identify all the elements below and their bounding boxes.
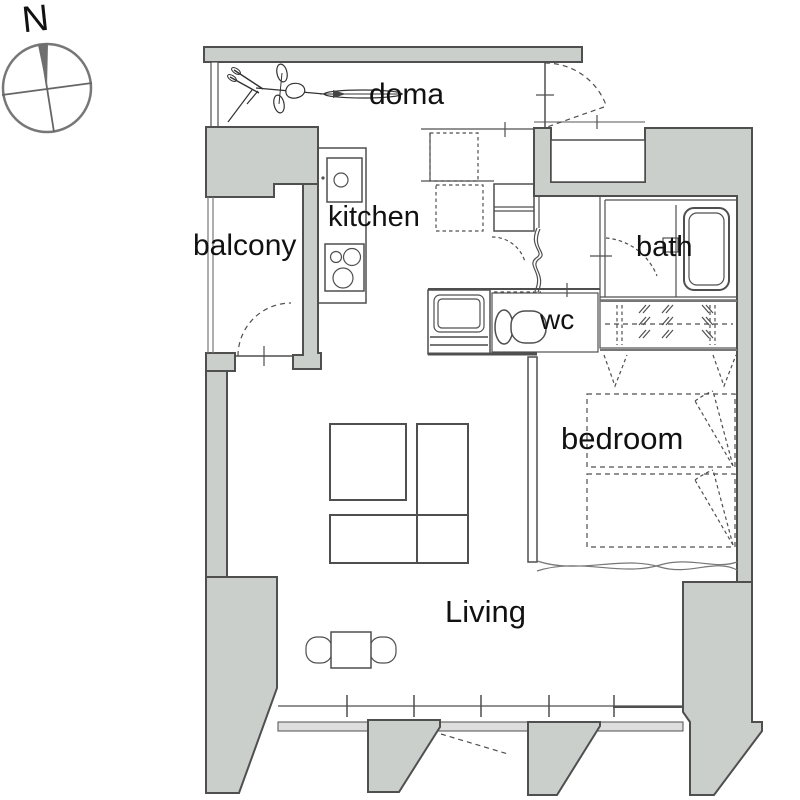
storage-box-dashed-1: [430, 133, 478, 181]
living-table-square: [330, 424, 406, 500]
chair-right: [370, 637, 396, 663]
pillar-bottom-mid-right: [528, 722, 600, 795]
pillar-bottom-mid-left: [368, 720, 440, 792]
accordion-curtain-icon-2: [536, 229, 542, 292]
wall-balcony-right: [293, 184, 321, 369]
room-label-kitchen: kitchen: [328, 203, 420, 232]
fold-fan-2: [695, 470, 733, 545]
burner-1: [331, 252, 342, 263]
shoe-cabinet-shelf: [494, 207, 534, 211]
faucet-dot: [321, 176, 324, 179]
window-dashed-diagonal: [441, 734, 508, 754]
closet: [600, 300, 737, 386]
room-label-doma: doma: [369, 80, 444, 110]
bedroom-items: [528, 357, 737, 571]
compass-icon: [2, 43, 92, 132]
burner-3: [333, 268, 353, 288]
bedroom-left-wall: [528, 357, 537, 562]
room-label-bedroom: bedroom: [561, 423, 683, 454]
compass-north-wedge: [38, 43, 48, 88]
closet-edges: [600, 301, 737, 350]
floorplan-canvas: N doma kitchen balcony bath wc bedroom L…: [0, 0, 800, 800]
wall-living-left: [206, 371, 227, 577]
kitchen-sink-icon: [327, 158, 362, 202]
genkan-step-lines: [421, 129, 534, 181]
folding-door-v-marks: [604, 355, 736, 386]
burner-2: [344, 249, 361, 266]
floorplan-drawing: [0, 0, 800, 800]
chair-left: [306, 637, 332, 663]
hall-door-swing: [492, 237, 525, 262]
living-furniture: [306, 424, 468, 668]
living-table-horizontal: [330, 515, 468, 563]
pillar-bottom-left: [206, 577, 277, 793]
room-label-living: Living: [445, 596, 526, 627]
storage-box-dashed-2: [436, 185, 483, 231]
wall-top-bar: [204, 47, 582, 62]
room-label-wc: wc: [540, 306, 574, 334]
small-table: [331, 632, 371, 668]
balcony-railing: [208, 197, 213, 353]
compass-north-label: N: [20, 0, 50, 38]
living-table-vertical: [417, 424, 468, 515]
balcony-fittings: [208, 197, 293, 366]
hanger-marks: [639, 305, 713, 338]
fold-fan-1: [695, 391, 733, 466]
room-label-bath: bath: [636, 233, 692, 262]
entry-recess: [551, 140, 645, 182]
sink-drain: [334, 173, 348, 187]
wall-doma-left: [211, 62, 218, 128]
wall-right-and-entry-band: [534, 128, 752, 582]
room-label-balcony: balcony: [193, 231, 296, 261]
sliding-window-glass: [278, 722, 683, 731]
living-windows: [278, 695, 686, 754]
pillar-bottom-right: [683, 582, 762, 795]
bath-left-wall: [600, 196, 605, 300]
wall-balcony-top-block: [206, 127, 318, 197]
wall-balcony-bottom-left: [206, 353, 235, 371]
